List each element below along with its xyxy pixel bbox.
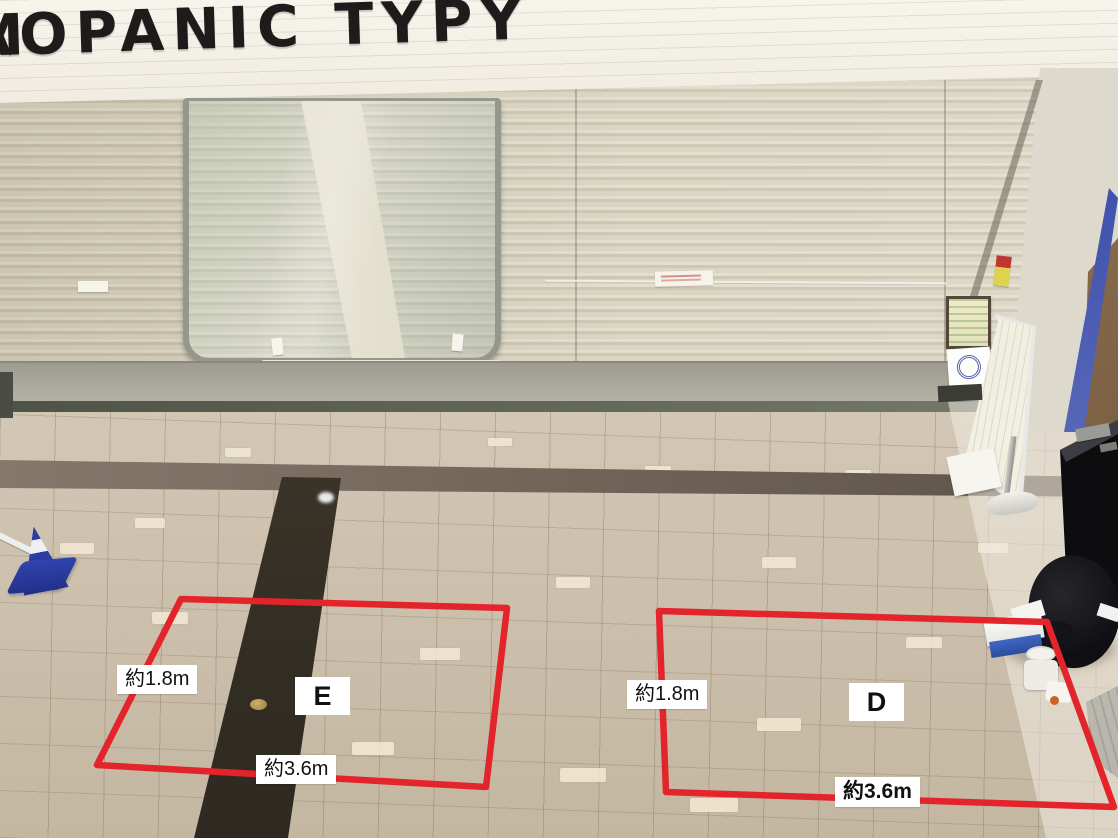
zone-d-width-label: 約3.6m	[835, 777, 920, 807]
zone-e-width-label: 約3.6m	[256, 755, 336, 784]
zone-outlines	[0, 0, 1118, 838]
zone-d-label: D	[849, 683, 904, 721]
zone-e-depth-label: 約1.8m	[117, 665, 197, 694]
mall-photo: MAOPANIC TYPY	[0, 0, 1118, 838]
zone-d-depth-label: 約1.8m	[627, 680, 707, 709]
zone-e-label: E	[295, 677, 350, 715]
